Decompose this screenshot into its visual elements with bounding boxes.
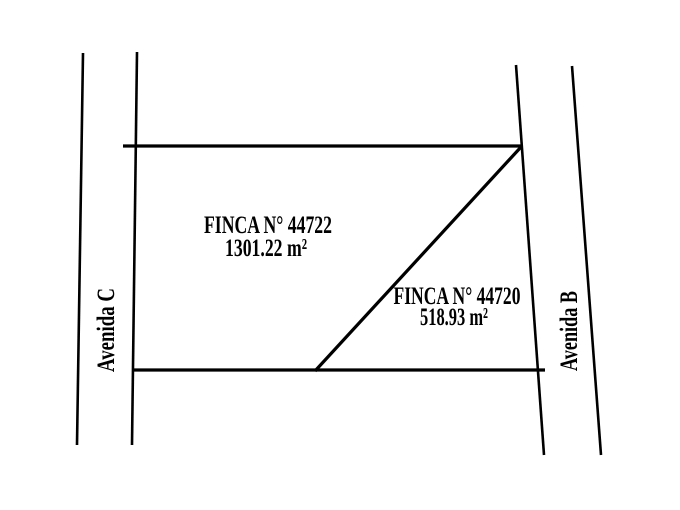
parcel-44722-area-label: 1301.22 m²: [225, 235, 307, 262]
parcel-survey-diagram: FINCA N° 44722 1301.22 m² FINCA N° 44720…: [0, 0, 680, 510]
avenida-c-label: Avenida C: [93, 288, 120, 372]
parcel-survey-page: FINCA N° 44722 1301.22 m² FINCA N° 44720…: [0, 0, 680, 510]
avenue-b-outer-edge-line: [572, 66, 601, 455]
parcel-boundaries: [123, 146, 545, 371]
parcel-division-diagonal-line: [315, 147, 521, 371]
parcel-labels: FINCA N° 44722 1301.22 m² FINCA N° 44720…: [204, 212, 521, 331]
avenue-b-inner-edge-line: [516, 65, 544, 455]
avenue-c-outer-edge-line: [77, 53, 83, 445]
avenida-b-label: Avenida B: [556, 291, 583, 371]
avenue-c-road: [77, 52, 137, 445]
avenue-c-inner-edge-line: [132, 52, 137, 445]
parcel-44720-area-label: 518.93 m²: [420, 304, 488, 331]
avenue-b-road: [516, 65, 601, 455]
